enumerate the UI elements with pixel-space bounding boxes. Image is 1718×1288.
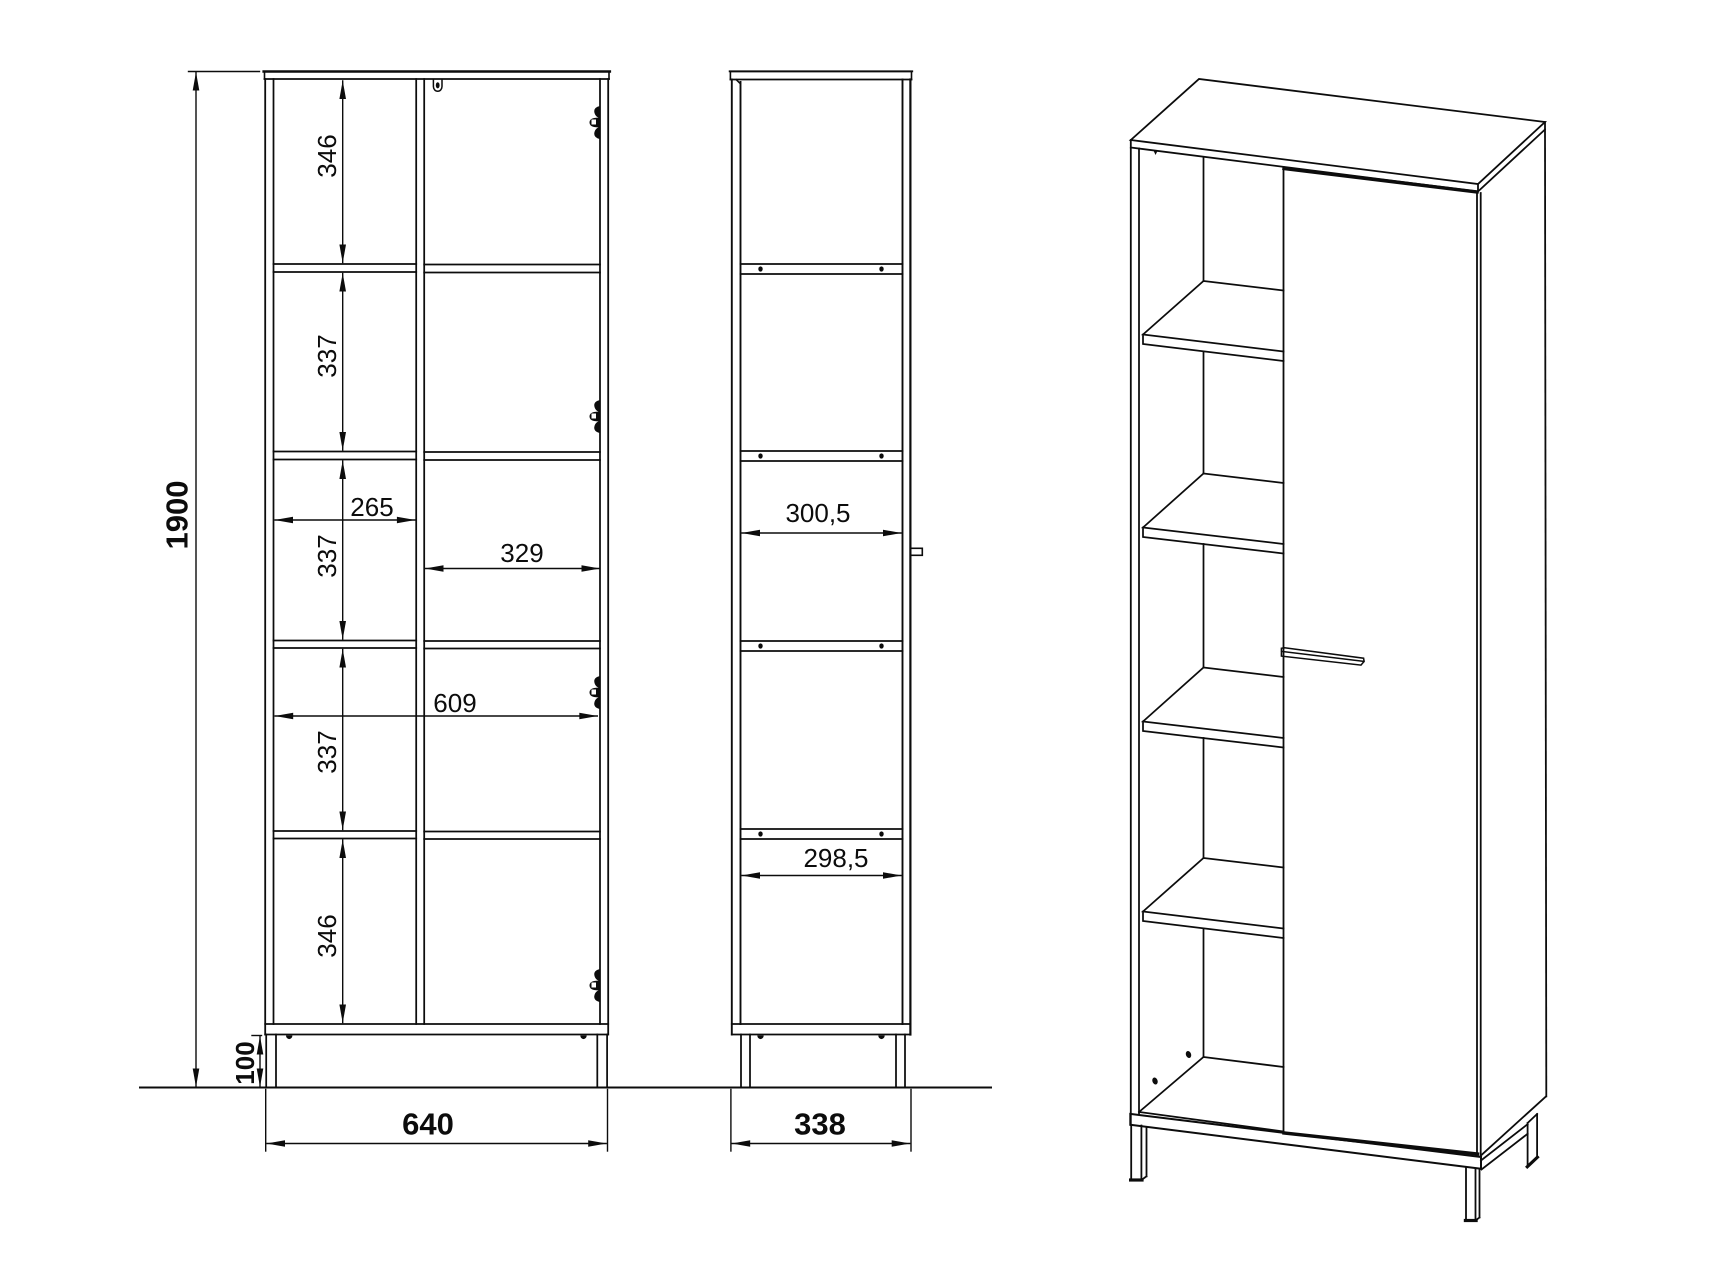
svg-text:1900: 1900 — [159, 481, 194, 550]
svg-text:265: 265 — [350, 492, 393, 522]
svg-text:609: 609 — [433, 688, 476, 718]
svg-text:337: 337 — [312, 534, 342, 577]
svg-text:346: 346 — [312, 914, 342, 957]
svg-text:338: 338 — [794, 1107, 846, 1142]
svg-text:346: 346 — [312, 134, 342, 177]
svg-text:329: 329 — [500, 538, 543, 568]
svg-text:640: 640 — [402, 1107, 454, 1142]
svg-text:337: 337 — [312, 730, 342, 773]
svg-text:298,5: 298,5 — [803, 843, 868, 873]
svg-text:337: 337 — [312, 334, 342, 377]
svg-text:300,5: 300,5 — [785, 498, 850, 528]
svg-text:100: 100 — [230, 1041, 260, 1084]
